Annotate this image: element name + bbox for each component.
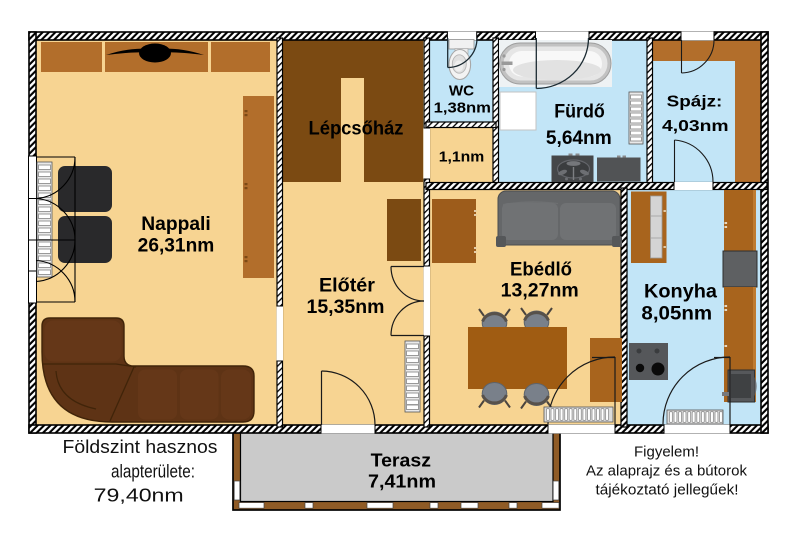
svg-text:8,05nm: 8,05nm xyxy=(641,304,712,325)
svg-text:5,64nm: 5,64nm xyxy=(546,128,612,149)
svg-text:WC: WC xyxy=(449,83,474,100)
svg-text:Előtér: Előtér xyxy=(319,276,376,297)
svg-text:79,40nm: 79,40nm xyxy=(94,485,184,506)
svg-text:Terasz: Terasz xyxy=(371,450,431,471)
svg-text:13,27nm: 13,27nm xyxy=(501,281,579,302)
svg-text:4,03nm: 4,03nm xyxy=(662,118,729,135)
svg-text:Spájz:: Spájz: xyxy=(667,94,723,111)
svg-text:Nappali: Nappali xyxy=(141,214,211,235)
svg-text:15,35nm: 15,35nm xyxy=(307,297,385,318)
svg-text:1,1nm: 1,1nm xyxy=(439,149,485,166)
svg-text:1,38nm: 1,38nm xyxy=(434,100,491,117)
svg-text:Ebédlő: Ebédlő xyxy=(510,259,572,280)
svg-text:Az alaprajz és a bútorok: Az alaprajz és a bútorok xyxy=(586,463,747,480)
svg-text:Konyha: Konyha xyxy=(644,282,717,303)
svg-text:Figyelem!: Figyelem! xyxy=(634,444,699,461)
svg-text:26,31nm: 26,31nm xyxy=(138,235,215,256)
svg-text:7,41nm: 7,41nm xyxy=(368,471,436,492)
svg-text:tájékoztató jellegűek!: tájékoztató jellegűek! xyxy=(596,482,739,499)
svg-text:Lépcsőház: Lépcsőház xyxy=(309,119,404,140)
svg-text:Fürdő: Fürdő xyxy=(554,102,605,123)
svg-text:alapterülete:: alapterülete: xyxy=(111,461,195,482)
svg-text:Földszint hasznos: Földszint hasznos xyxy=(63,436,218,457)
